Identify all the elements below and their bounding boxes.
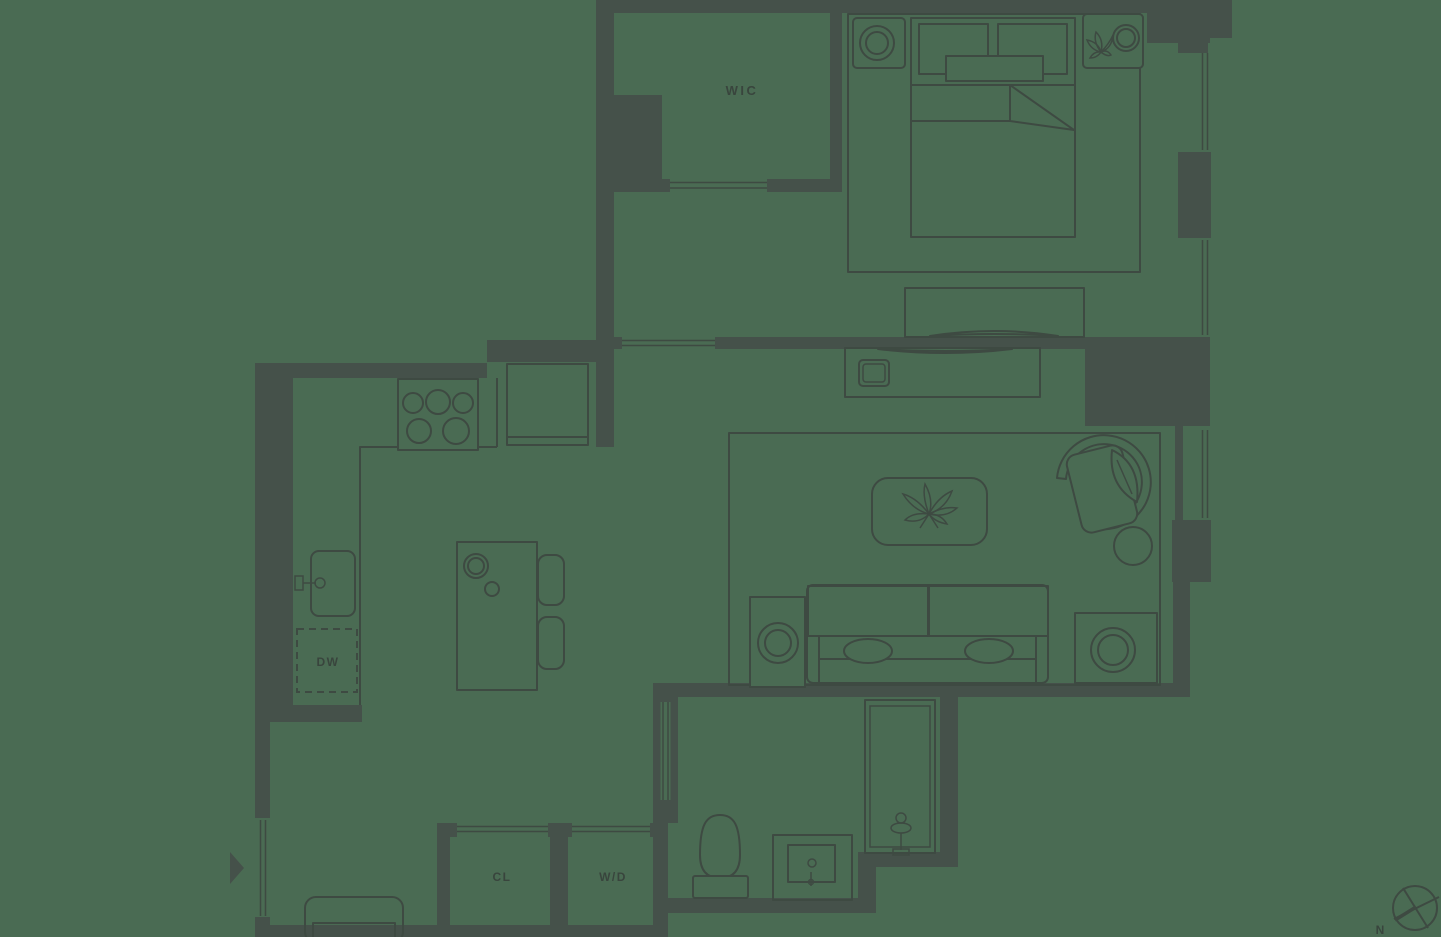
floor-plan: DW WIC C [0, 0, 1441, 937]
washer-dryer-label: W/D [599, 870, 627, 884]
wall-window-cap [1178, 43, 1208, 53]
island-stool [538, 617, 564, 669]
floor-plan-page: DW WIC C [0, 0, 1441, 937]
closet-label: CL [493, 870, 512, 884]
toilet-tank [693, 876, 748, 898]
wall-entry-bath-lower [653, 823, 668, 937]
sofa [807, 585, 1048, 683]
wall-entry-west [255, 722, 270, 818]
wall-east-lower [1173, 582, 1190, 697]
wall-northeast-corner [1147, 0, 1210, 43]
media-console [845, 348, 1040, 397]
wall-hall-bedroom [830, 0, 842, 192]
wall-closet-divider [550, 823, 568, 937]
north-label: N [1376, 923, 1385, 937]
wall-east-block [1085, 337, 1210, 426]
wall-kitchen-stub [255, 705, 362, 722]
wall-south [255, 925, 668, 937]
dishwasher-label: DW [317, 655, 340, 669]
toilet-bowl [700, 815, 740, 878]
wall-wic-block [610, 95, 662, 192]
wall-closet-west [437, 823, 450, 937]
wall-west-upper [596, 0, 614, 447]
wall-bath-east [940, 683, 958, 867]
throw-pillow [965, 639, 1013, 663]
wic-label: WIC [726, 83, 759, 98]
wall-east-pier-thin [1175, 426, 1183, 520]
wall-northeast-sliver [1210, 0, 1232, 38]
bath-door-slot [661, 702, 671, 800]
wall-north [596, 0, 1232, 13]
wall-east-chunk [1172, 520, 1211, 582]
bed-folded-blanket [946, 56, 1043, 81]
dresser [905, 288, 1084, 337]
wall-kitchen-step [487, 340, 614, 362]
wall-east-pier [1178, 152, 1211, 238]
floor-background [0, 0, 1441, 937]
refrigerator [507, 364, 588, 445]
wall-kitchen-west [255, 363, 293, 722]
kitchen-sink [311, 551, 355, 616]
throw-pillow [844, 639, 892, 663]
wall-wic-south-left [660, 179, 670, 192]
island-stool [538, 555, 564, 605]
